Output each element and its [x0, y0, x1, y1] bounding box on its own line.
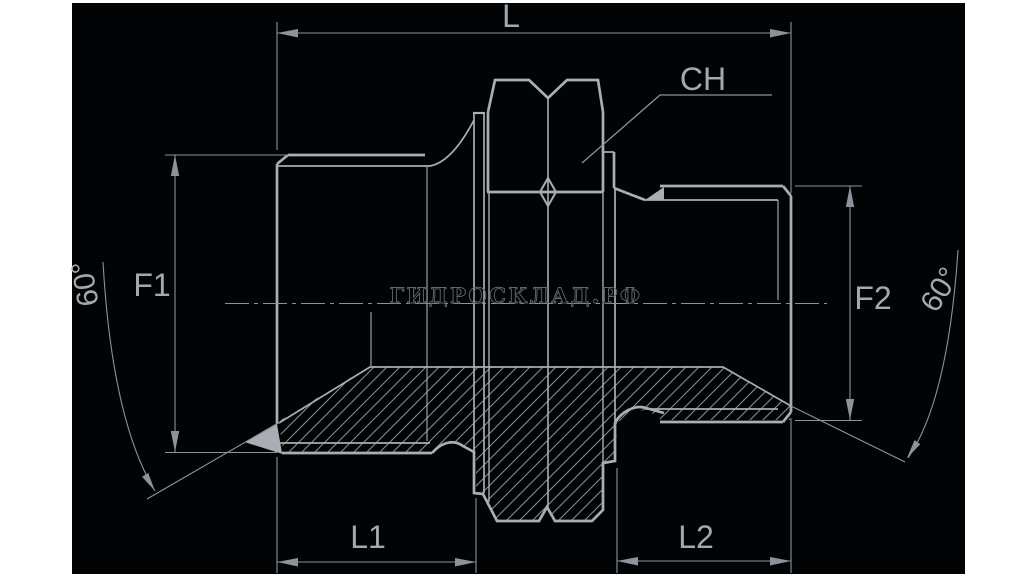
label-thread-left: F1 — [133, 267, 170, 303]
label-overall-length: L — [502, 0, 520, 34]
watermark-text: ГИДРОСКЛАД.РФ — [390, 283, 643, 308]
label-length-right: L2 — [678, 519, 714, 555]
drawing-page: L F1 F2 L1 L2 CH 60° 60° ГИД — [0, 0, 1034, 586]
label-length-left: L1 — [350, 519, 386, 555]
technical-drawing: L F1 F2 L1 L2 CH 60° 60° ГИД — [0, 0, 1034, 586]
label-wrench-size: CH — [680, 61, 726, 97]
label-thread-right: F2 — [854, 280, 891, 316]
